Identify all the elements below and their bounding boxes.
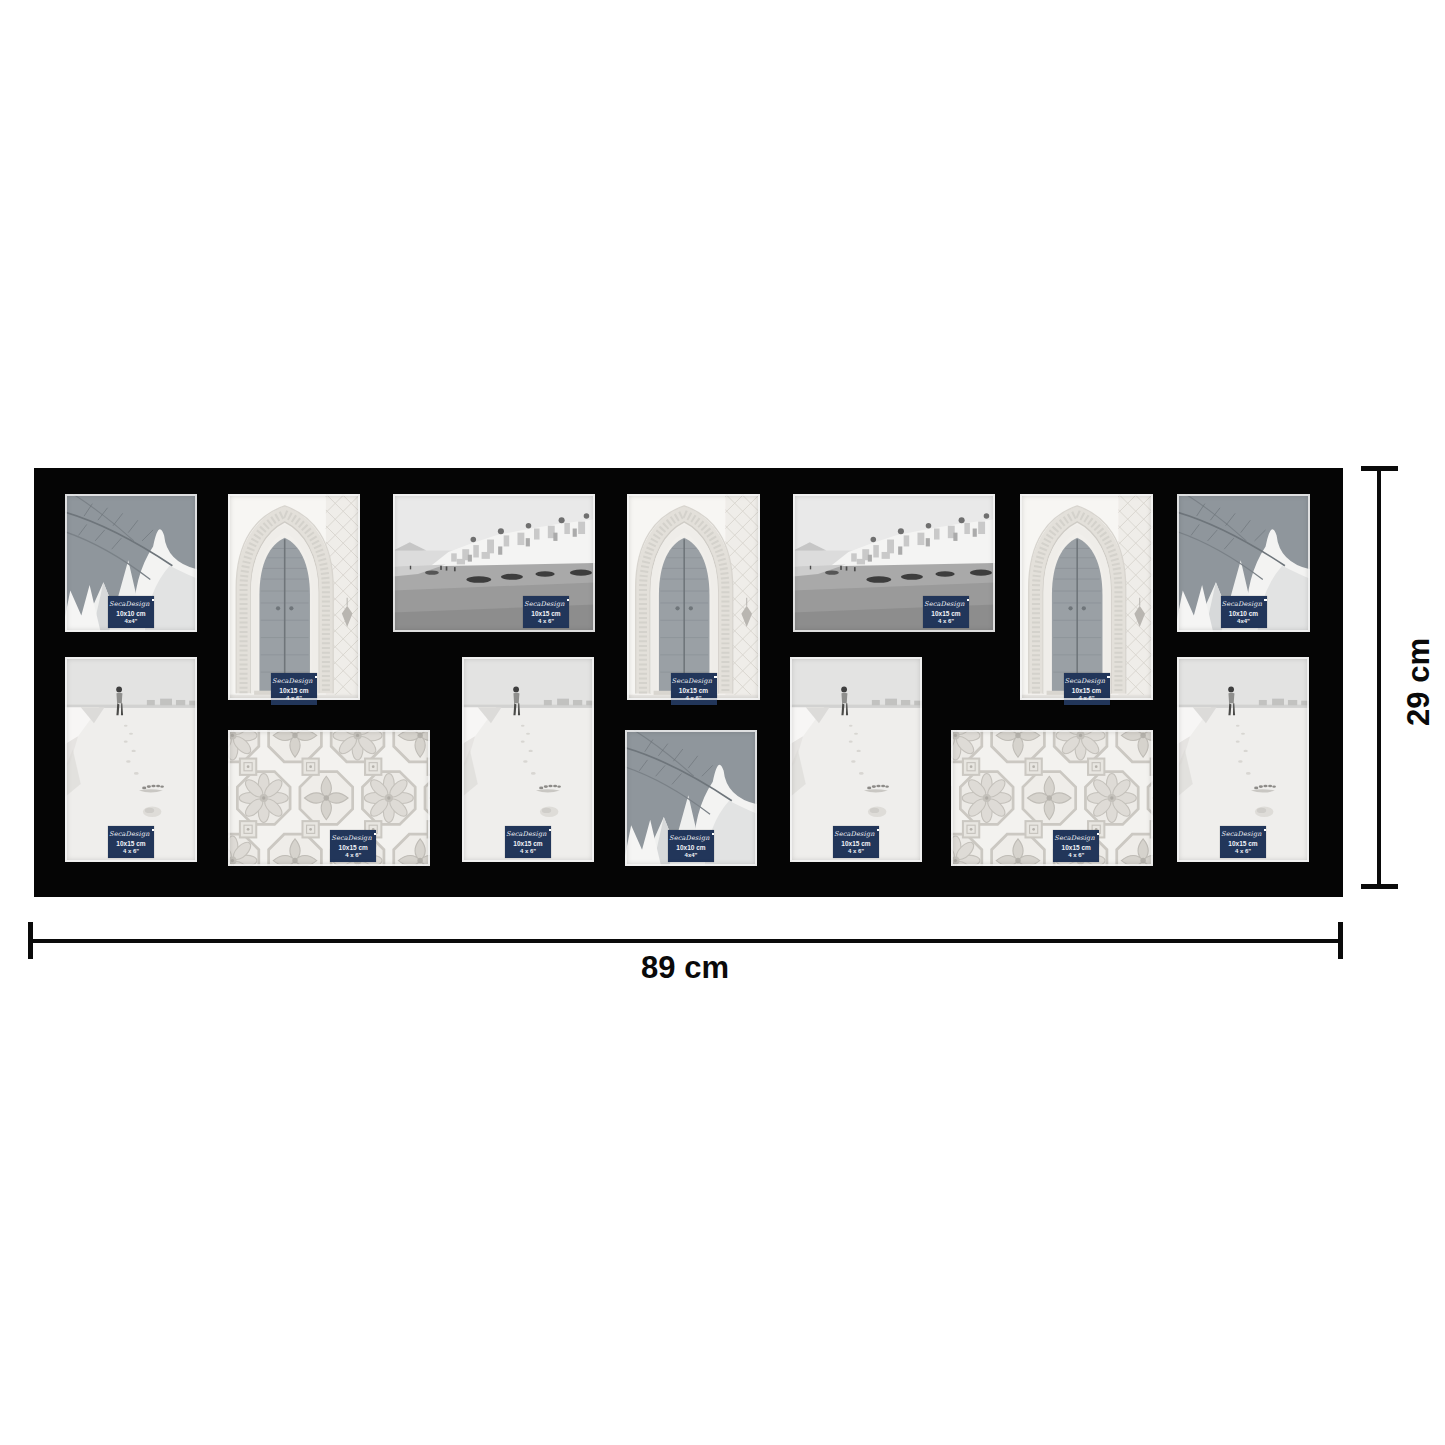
size-cm-label: 10x15 cm: [331, 844, 375, 852]
collage-photo-frame: SecaDesign10x10 cm4x4"SecaDesign10x15 cm…: [34, 468, 1343, 897]
star-icon: [877, 829, 880, 832]
photo-opening-beach-town: SecaDesign10x15 cm4 x 6": [793, 494, 995, 632]
star-icon: [1264, 599, 1267, 602]
brand-logo: SecaDesign: [1222, 599, 1266, 608]
brand-logo: SecaDesign: [672, 676, 716, 685]
size-inch-label: 4 x 6": [1065, 695, 1109, 702]
height-dimension-top-cap: [1361, 466, 1398, 471]
height-dimension-label: 29 cm: [1401, 638, 1437, 726]
size-cm-label: 10x15 cm: [834, 840, 878, 848]
size-inch-label: 4 x 6": [834, 848, 878, 855]
photo-opening-palm-leaves: SecaDesign10x10 cm4x4": [65, 494, 197, 632]
size-cm-label: 10x15 cm: [109, 840, 153, 848]
photo-opening-moroccan-door: SecaDesign10x15 cm4 x 6": [627, 494, 760, 700]
size-sticker: SecaDesign10x10 cm4x4": [1221, 596, 1267, 628]
photo-opening-beach-walker: SecaDesign10x15 cm4 x 6": [65, 657, 197, 862]
size-cm-label: 10x15 cm: [672, 687, 716, 695]
brand-logo: SecaDesign: [669, 833, 713, 842]
size-cm-label: 10x10 cm: [669, 844, 713, 852]
size-inch-label: 4 x 6": [1054, 852, 1098, 859]
star-icon: [1107, 676, 1110, 679]
size-sticker: SecaDesign10x15 cm4 x 6": [523, 596, 569, 628]
size-cm-label: 10x15 cm: [506, 840, 550, 848]
size-cm-label: 10x10 cm: [1222, 610, 1266, 618]
star-icon: [152, 829, 155, 832]
photo-opening-beach-walker: SecaDesign10x15 cm4 x 6": [790, 657, 922, 862]
size-sticker: SecaDesign10x15 cm4 x 6": [330, 830, 376, 862]
size-inch-label: 4 x 6": [524, 618, 568, 625]
brand-logo: SecaDesign: [524, 599, 568, 608]
star-icon: [152, 599, 155, 602]
size-sticker: SecaDesign10x15 cm4 x 6": [671, 673, 717, 705]
placeholder-photo-moroccan-tiles: [951, 730, 1153, 866]
brand-logo: SecaDesign: [834, 829, 878, 838]
size-cm-label: 10x15 cm: [524, 610, 568, 618]
size-inch-label: 4x4": [669, 852, 713, 859]
product-showcase: SecaDesign10x10 cm4x4"SecaDesign10x15 cm…: [0, 0, 1445, 1445]
size-cm-label: 10x15 cm: [272, 687, 316, 695]
size-cm-label: 10x15 cm: [1054, 844, 1098, 852]
size-sticker: SecaDesign10x15 cm4 x 6": [271, 673, 317, 705]
size-sticker: SecaDesign10x15 cm4 x 6": [1053, 830, 1099, 862]
star-icon: [549, 829, 552, 832]
photo-opening-moroccan-door: SecaDesign10x15 cm4 x 6": [1020, 494, 1153, 700]
photo-opening-moroccan-door: SecaDesign10x15 cm4 x 6": [228, 494, 360, 700]
size-cm-label: 10x15 cm: [1065, 687, 1109, 695]
size-inch-label: 4 x 6": [272, 695, 316, 702]
size-inch-label: 4x4": [1222, 618, 1266, 625]
photo-opening-beach-walker: SecaDesign10x15 cm4 x 6": [1177, 657, 1309, 862]
width-dimension-label: 89 cm: [30, 950, 1340, 986]
photo-opening-beach-town: SecaDesign10x15 cm4 x 6": [393, 494, 595, 632]
size-cm-label: 10x15 cm: [924, 610, 968, 618]
placeholder-photo-moroccan-tiles: [228, 730, 430, 866]
height-dimension-line: [1377, 468, 1381, 888]
size-sticker: SecaDesign10x15 cm4 x 6": [833, 826, 879, 858]
photo-opening-palm-leaves: SecaDesign10x10 cm4x4": [625, 730, 757, 866]
brand-logo: SecaDesign: [506, 829, 550, 838]
height-dimension-bottom-cap: [1361, 884, 1398, 889]
star-icon: [374, 833, 377, 836]
placeholder-photo-moroccan-door: [1020, 494, 1153, 700]
brand-logo: SecaDesign: [109, 599, 153, 608]
size-sticker: SecaDesign10x10 cm4x4": [668, 830, 714, 862]
photo-opening-moroccan-tiles: SecaDesign10x15 cm4 x 6": [951, 730, 1153, 866]
brand-logo: SecaDesign: [924, 599, 968, 608]
brand-logo: SecaDesign: [331, 833, 375, 842]
brand-logo: SecaDesign: [1065, 676, 1109, 685]
brand-logo: SecaDesign: [1054, 833, 1098, 842]
star-icon: [967, 599, 970, 602]
size-cm-label: 10x10 cm: [109, 610, 153, 618]
size-inch-label: 4 x 6": [109, 848, 153, 855]
size-inch-label: 4x4": [109, 618, 153, 625]
size-inch-label: 4 x 6": [506, 848, 550, 855]
brand-logo: SecaDesign: [109, 829, 153, 838]
star-icon: [712, 833, 715, 836]
star-icon: [315, 676, 318, 679]
size-inch-label: 4 x 6": [924, 618, 968, 625]
size-sticker: SecaDesign10x15 cm4 x 6": [1064, 673, 1110, 705]
size-sticker: SecaDesign10x15 cm4 x 6": [1220, 826, 1266, 858]
placeholder-photo-moroccan-door: [627, 494, 760, 700]
brand-logo: SecaDesign: [272, 676, 316, 685]
size-cm-label: 10x15 cm: [1221, 840, 1265, 848]
size-inch-label: 4 x 6": [331, 852, 375, 859]
size-sticker: SecaDesign10x15 cm4 x 6": [108, 826, 154, 858]
size-inch-label: 4 x 6": [672, 695, 716, 702]
star-icon: [1097, 833, 1100, 836]
photo-opening-moroccan-tiles: SecaDesign10x15 cm4 x 6": [228, 730, 430, 866]
size-sticker: SecaDesign10x10 cm4x4": [108, 596, 154, 628]
star-icon: [567, 599, 570, 602]
star-icon: [714, 676, 717, 679]
size-sticker: SecaDesign10x15 cm4 x 6": [923, 596, 969, 628]
star-icon: [1264, 829, 1267, 832]
size-sticker: SecaDesign10x15 cm4 x 6": [505, 826, 551, 858]
size-inch-label: 4 x 6": [1221, 848, 1265, 855]
photo-opening-beach-walker: SecaDesign10x15 cm4 x 6": [462, 657, 594, 862]
brand-logo: SecaDesign: [1221, 829, 1265, 838]
width-dimension-line: [30, 939, 1340, 943]
photo-opening-palm-leaves: SecaDesign10x10 cm4x4": [1177, 494, 1310, 632]
placeholder-photo-moroccan-door: [228, 494, 360, 700]
